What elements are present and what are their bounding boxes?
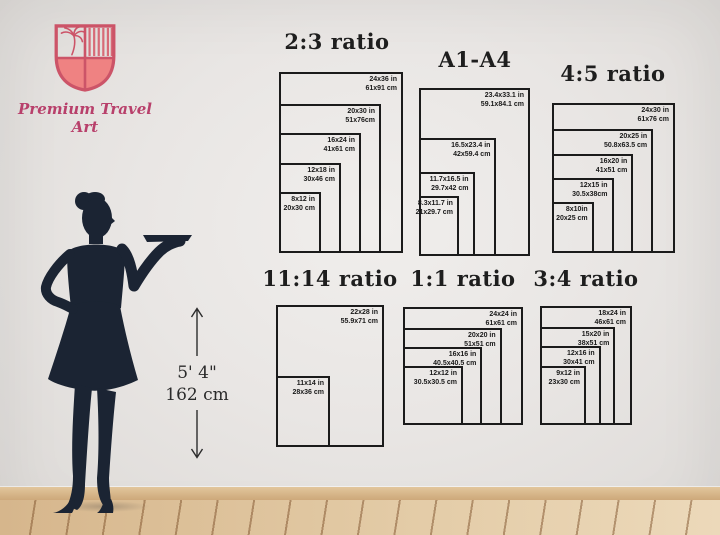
size-rect: 8x12 in20x30 cm [279,192,321,253]
height-metric: 162 cm [157,384,237,406]
size-label: 9x12 in23x30 cm [548,369,580,387]
size-centimeters: 20x30 cm [283,204,315,213]
size-inches: 24x24 in [485,310,517,319]
size-inches: 12x12 in [414,369,457,378]
size-rects: 24x36 in61x91 cm20x30 in51x76cm16x24 in4… [281,74,401,251]
size-inches: 16x24 in [323,136,355,145]
size-inches: 8.3x11.7 in [416,199,453,208]
size-rect: 8.3x11.7 in21x29.7 cm [419,196,459,256]
size-centimeters: 50.8x63.5 cm [604,141,647,150]
down-arrow-icon [190,410,204,460]
size-rects: 22x28 in55.9x71 cm11x14 in28x36 cm [278,307,382,445]
size-inches: 23.4x33.1 in [481,91,524,100]
size-label: 20x25 in50.8x63.5 cm [604,132,647,150]
size-label: 22x28 in55.9x71 cm [341,308,378,326]
size-label: 24x30 in61x76 cm [637,106,669,124]
size-centimeters: 21x29.7 cm [416,208,453,217]
size-label: 23.4x33.1 in59.1x84.1 cm [481,91,524,109]
size-centimeters: 61x61 cm [485,319,517,328]
size-inches: 12x15 in [572,181,607,190]
size-inches: 12x16 in [563,349,595,358]
size-centimeters: 20x25 cm [556,214,588,223]
brand-name: Premium Travel Art [10,100,160,136]
size-centimeters: 61x91 cm [365,84,397,93]
size-label: 8x12 in20x30 cm [283,195,315,213]
size-label: 16.5x23.4 in42x59.4 cm [451,141,490,159]
size-label: 12x18 in30x46 cm [303,166,335,184]
size-diagram-4-5: 24x30 in61x76 cm20x25 in50.8x63.5 cm16x2… [552,103,675,253]
size-label: 16x20 in41x51 cm [596,157,628,175]
size-rect: 8x10in20x25 cm [552,202,594,253]
size-label: 12x15 in30.5x38cm [572,181,607,199]
size-diagram-3-4: 18x24 in46x61 cm15x20 in38x51 cm12x16 in… [540,306,632,425]
size-diagram-1-1: 24x24 in61x61 cm20x20 in51x51 cm16x16 in… [403,307,523,425]
size-label: 20x30 in51x76cm [345,107,375,125]
size-centimeters: 30.5x38cm [572,190,607,199]
size-centimeters: 55.9x71 cm [341,317,378,326]
size-inches: 16.5x23.4 in [451,141,490,150]
size-inches: 8x12 in [283,195,315,204]
size-diagram-2-3: 24x36 in61x91 cm20x30 in51x76cm16x24 in4… [279,72,403,253]
size-centimeters: 41x51 cm [596,166,628,175]
size-rect: 12x12 in30.5x30.5 cm [403,366,463,425]
size-rect: 9x12 in23x30 cm [540,366,586,426]
size-inches: 11x14 in [292,379,324,388]
size-rects: 18x24 in46x61 cm15x20 in38x51 cm12x16 in… [542,308,630,423]
size-diagram-11-14: 22x28 in55.9x71 cm11x14 in28x36 cm [276,305,384,447]
height-imperial: 5' 4" [157,362,237,384]
size-centimeters: 61x76 cm [637,115,669,124]
room-scene: Premium Travel Art 5' 4" 16 [0,0,720,535]
size-inches: 12x18 in [303,166,335,175]
brand-logo: Premium Travel Art [10,22,160,136]
size-inches: 20x30 in [345,107,375,116]
size-centimeters: 30.5x30.5 cm [414,378,457,387]
size-centimeters: 51x76cm [345,116,375,125]
size-inches: 20x25 in [604,132,647,141]
size-inches: 16x20 in [596,157,628,166]
size-centimeters: 23x30 cm [548,378,580,387]
size-inches: 24x36 in [365,75,397,84]
size-label: 8.3x11.7 in21x29.7 cm [416,199,453,217]
size-inches: 9x12 in [548,369,580,378]
size-label: 12x12 in30.5x30.5 cm [414,369,457,387]
size-label: 11.7x16.5 in29.7x42 cm [430,175,469,193]
shield-stripes [90,28,112,56]
up-arrow-icon [190,306,204,358]
palm-tree-icon [61,27,85,55]
size-label: 11x14 in28x36 cm [292,379,324,397]
size-label: 8x10in20x25 cm [556,205,588,223]
size-rects: 24x24 in61x61 cm20x20 in51x51 cm16x16 in… [405,309,521,423]
size-inches: 22x28 in [341,308,378,317]
diagram-title: 3:4 ratio [504,266,668,291]
size-rects: 23.4x33.1 in59.1x84.1 cm16.5x23.4 in42x5… [421,90,528,254]
size-label: 18x24 in46x61 cm [594,309,626,327]
size-inches: 15x20 in [578,330,610,339]
size-rects: 24x30 in61x76 cm20x25 in50.8x63.5 cm16x2… [554,105,673,251]
size-label: 24x24 in61x61 cm [485,310,517,328]
size-inches: 24x30 in [637,106,669,115]
size-centimeters: 42x59.4 cm [451,150,490,159]
size-centimeters: 28x36 cm [292,388,324,397]
size-inches: 20x20 in [464,331,496,340]
size-inches: 16x16 in [433,350,476,359]
size-inches: 11.7x16.5 in [430,175,469,184]
size-centimeters: 46x61 cm [594,318,626,327]
size-centimeters: 59.1x84.1 cm [481,100,524,109]
size-centimeters: 29.7x42 cm [430,184,469,193]
height-marker: 5' 4" 162 cm [157,306,237,471]
diagram-title: 4:5 ratio [531,61,695,86]
size-rect: 11x14 in28x36 cm [276,376,330,447]
shield-logo-icon [51,22,119,94]
size-centimeters: 30x46 cm [303,175,335,184]
size-centimeters: 41x61 cm [323,145,355,154]
size-inches: 8x10in [556,205,588,214]
size-diagram-a1-a4: 23.4x33.1 in59.1x84.1 cm16.5x23.4 in42x5… [419,88,530,256]
size-inches: 18x24 in [594,309,626,318]
size-label: 24x36 in61x91 cm [365,75,397,93]
size-label: 16x24 in41x61 cm [323,136,355,154]
